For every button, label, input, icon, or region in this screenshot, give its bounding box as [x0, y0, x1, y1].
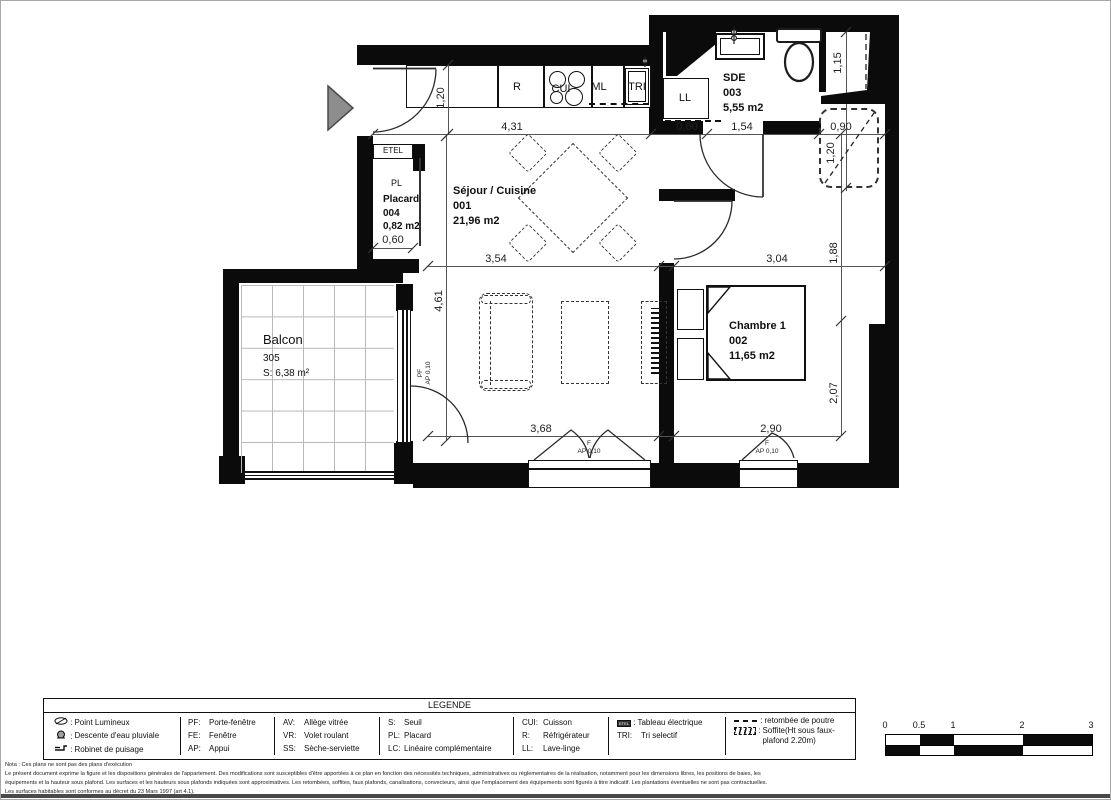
legend-label: Robinet de puisage	[74, 745, 143, 754]
chambre-area: 11,65 m2	[729, 349, 786, 364]
floor-plan-sheet: ETEL	[0, 0, 1111, 800]
legend-separator-4	[513, 717, 514, 755]
sde-door-arc	[700, 134, 763, 197]
dim-0-90: 0,90	[830, 121, 851, 133]
room-label-sejour: Séjour / Cuisine 001 21,96 m2	[453, 184, 536, 229]
etel-mini-label: ETEL	[617, 720, 631, 727]
legend-label: Point Lumineux	[74, 718, 129, 727]
sejour-area: 21,96 m2	[453, 214, 536, 229]
legend-label: Tri selectif	[641, 731, 677, 740]
sde-name: SDE	[723, 71, 763, 86]
legend-abbr: SS	[283, 742, 304, 755]
room-label-placard: PL Placard 004 0,82 m2	[383, 177, 420, 234]
legend-box: LEGENDE Point Lumineux Descente d'eau pl…	[43, 698, 856, 760]
chambre-door-arc	[674, 201, 732, 259]
balcony-door-label: PF AP 0,10	[417, 361, 433, 384]
legend-label: Linéaire complémentaire	[404, 744, 492, 753]
note-line-2: Le présent document exprime la figure et…	[5, 770, 767, 779]
placard-area: 0,82 m2	[383, 220, 420, 234]
legend-label: Appui	[209, 744, 229, 753]
legend-abbr: LL	[522, 742, 543, 755]
dim-2-07: 2,07	[828, 382, 840, 403]
scale-bar-segments	[885, 734, 1093, 756]
scale-tick-2: 2	[1019, 720, 1024, 730]
legend-label: retombée de poutre	[764, 716, 834, 725]
legend-label: Tableau électrique	[637, 718, 702, 727]
window-chambre-ap: AP 0,10	[755, 448, 778, 456]
legend-abbr: AV	[283, 716, 304, 729]
chambre-name: Chambre 1	[729, 319, 786, 334]
legend-abbr: S	[388, 716, 404, 729]
window-sejour-f: F	[577, 440, 600, 448]
placard-tag: PL	[383, 177, 420, 189]
window-sejour-ap: AP 0,10	[577, 448, 600, 456]
scale-tick-3: 3	[1088, 720, 1093, 730]
label-ml: ML	[591, 81, 606, 93]
legend-title: LEGENDE	[44, 699, 855, 713]
lamp-icon	[54, 716, 72, 729]
window-chambre-label: F AP 0,10	[755, 440, 778, 456]
legend-separator-6	[725, 717, 726, 755]
dim-1-20-soffit: 1,20	[825, 142, 837, 163]
legend-col-misc: SSeuil PLPlacard LCLinéaire complémentai…	[388, 716, 510, 755]
wall-wedge-sde	[666, 32, 716, 76]
legend-label: Réfrigérateur	[543, 731, 590, 740]
legend-label: Porte-fenêtre	[209, 718, 256, 727]
legend-abbr: FE	[188, 729, 209, 742]
notes-block: Nota : Ces plans ne sont pas des plans d…	[5, 761, 767, 797]
sde-area: 5,55 m2	[723, 101, 763, 116]
legend-label: Placard	[404, 731, 431, 740]
legend-label: Volet roulant	[304, 731, 348, 740]
balcony-door-arc	[411, 386, 468, 443]
dim-1-88: 1,88	[828, 242, 840, 263]
label-cooktop: CUI	[552, 83, 571, 95]
dim-2-90: 2,90	[760, 423, 781, 435]
legend-separator-5	[608, 717, 609, 755]
balcony-door-pf: PF	[417, 361, 425, 384]
dim-1-15: 1,15	[832, 52, 844, 73]
bed-pillow-2	[708, 353, 730, 379]
entry-arrow-icon	[328, 86, 353, 130]
dim-0-60-top: 0,60	[676, 121, 697, 133]
label-ll: LL	[679, 92, 691, 104]
legend-label: Fenêtre	[209, 731, 237, 740]
legend-col-openings: PFPorte-fenêtre FEFenêtre APAppui	[188, 716, 272, 755]
legend-col-appliances: CUICuisson RRéfrigérateur LLLave-linge	[522, 716, 606, 755]
plan-linework	[1, 1, 1110, 799]
legend-col-electrical: ETELTableau électrique TRITri selectif	[617, 716, 723, 742]
legend-separator-3	[379, 717, 380, 755]
entry-door-arc	[373, 69, 436, 132]
legend-label: Sèche-serviette	[304, 744, 360, 753]
legend-col-symbols: Point Lumineux Descente d'eau pluviale R…	[54, 716, 178, 756]
legend-abbr: PL	[388, 729, 404, 742]
dim-4-31: 4,31	[501, 121, 522, 133]
legend-abbr: VR	[283, 729, 304, 742]
balcon-name: Balcon	[263, 331, 309, 349]
etel-icon: ETEL	[617, 716, 635, 729]
bed-pillow-1	[708, 287, 730, 313]
legend-label: Cuisson	[543, 718, 572, 727]
note-line-3: équipements et la hauteur sous plafond. …	[5, 779, 767, 788]
dim-4-61: 4,61	[433, 290, 445, 311]
legend-label: Soffite(Ht sous faux-plafond 2.20m)	[762, 726, 846, 744]
soffit-hatch-icon	[734, 726, 760, 744]
legend-separator-2	[274, 717, 275, 755]
legend-label: Allège vitrée	[304, 718, 348, 727]
dim-0-60-placard: 0,60	[382, 234, 403, 246]
toilet-bowl	[785, 43, 813, 81]
dim-1-20-entry: 1,20	[435, 87, 447, 108]
tap-icon	[54, 743, 72, 756]
sejour-name: Séjour / Cuisine	[453, 184, 536, 199]
legend-abbr: TRI	[617, 729, 641, 742]
note-line-1: Nota : Ces plans ne sont pas des plans d…	[5, 761, 767, 770]
sde-number: 003	[723, 86, 763, 101]
legend-abbr: AP	[188, 742, 209, 755]
scale-tick-0: 0	[882, 720, 887, 730]
legend-abbr: R	[522, 729, 543, 742]
legend-col-glazing: AVAllège vitrée VRVolet roulant SSSèche-…	[283, 716, 377, 755]
legend-separator-1	[180, 717, 181, 755]
scale-tick-05: 0.5	[913, 720, 926, 730]
label-fridge: R	[513, 81, 521, 93]
beam-dashes-icon	[734, 716, 762, 725]
legend-abbr: LC	[388, 742, 404, 755]
window-chambre-f: F	[755, 440, 778, 448]
dim-3-68: 3,68	[530, 423, 551, 435]
chambre-number: 002	[729, 334, 786, 349]
legend-label: Descente d'eau pluviale	[74, 731, 159, 740]
legend-label: Lave-linge	[543, 744, 580, 753]
legend-abbr: CUI	[522, 716, 543, 729]
sejour-number: 001	[453, 199, 536, 214]
rain-downpipe-icon	[54, 730, 72, 743]
toilet-tank	[777, 29, 821, 42]
placard-number: 004	[383, 207, 420, 221]
label-tri: TRI	[628, 81, 646, 93]
room-label-chambre: Chambre 1 002 11,65 m2	[729, 319, 786, 364]
sheet-bottom-rule	[1, 794, 1110, 798]
legend-abbr: PF	[188, 716, 209, 729]
placard-name: Placard	[383, 193, 420, 207]
legend-label: Seuil	[404, 718, 422, 727]
legend-col-structure: retombée de poutre Soffite(Ht sous faux-…	[734, 716, 850, 745]
dim-3-54: 3,54	[485, 253, 506, 265]
balcony-door-ap: AP 0,10	[425, 361, 433, 384]
balcon-area: S: 6,38 m²	[263, 367, 309, 381]
room-label-sde: SDE 003 5,55 m2	[723, 71, 763, 116]
room-label-balcon: Balcon 305 S: 6,38 m²	[263, 331, 309, 381]
window-sejour-label: F AP 0,10	[577, 440, 600, 456]
balcon-number: 305	[263, 352, 309, 366]
dim-3-04: 3,04	[766, 253, 787, 265]
wall-wedge-shower	[821, 32, 885, 104]
scale-tick-1: 1	[950, 720, 955, 730]
dim-1-54: 1,54	[731, 121, 752, 133]
